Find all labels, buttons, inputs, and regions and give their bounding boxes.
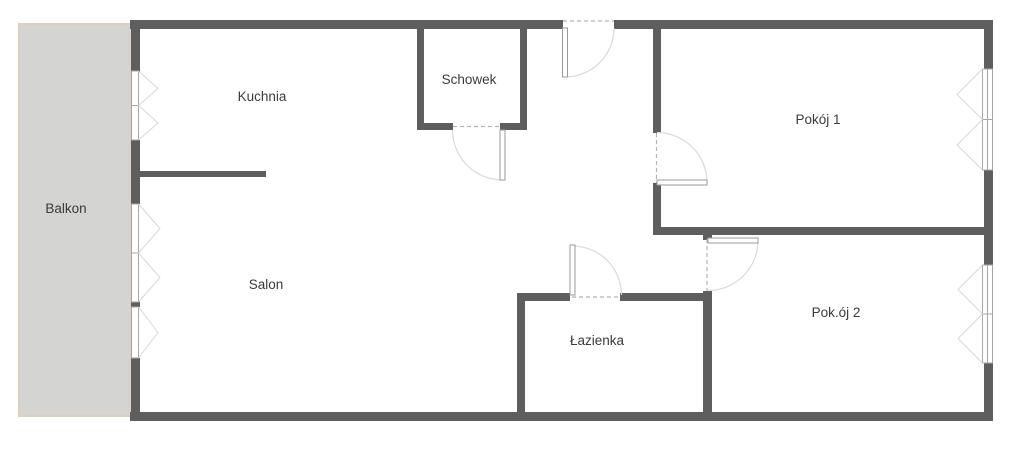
lazienka-door xyxy=(570,245,622,297)
window-kuchnia xyxy=(132,71,159,140)
room-label-pokoj2: Pok.ój 2 xyxy=(776,305,896,321)
pokoj1-door xyxy=(657,133,708,186)
room-label-balkon: Balkon xyxy=(6,201,126,217)
window-salon-lower xyxy=(132,307,159,358)
room-label-kuchnia: Kuchnia xyxy=(202,89,322,105)
room-label-lazienka: Łazienka xyxy=(537,333,657,349)
schowek-door xyxy=(453,127,506,181)
entrance-door xyxy=(563,21,615,77)
floor-plan-drawing xyxy=(0,0,1024,471)
walls xyxy=(130,20,993,421)
pokoj2-door xyxy=(707,238,758,291)
room-label-salon: Salon xyxy=(206,277,326,293)
window-salon-upper xyxy=(132,204,161,302)
room-label-pokoj1: Pokój 1 xyxy=(758,112,878,128)
window-pokoj1 xyxy=(957,69,993,170)
room-label-schowek: Schowek xyxy=(409,72,529,88)
balcony-area xyxy=(19,24,131,416)
doors xyxy=(453,21,759,297)
floor-plan: Balkon Kuchnia Schowek Pokój 1 Salon Łaz… xyxy=(0,0,1024,471)
window-pokoj2 xyxy=(958,265,993,363)
